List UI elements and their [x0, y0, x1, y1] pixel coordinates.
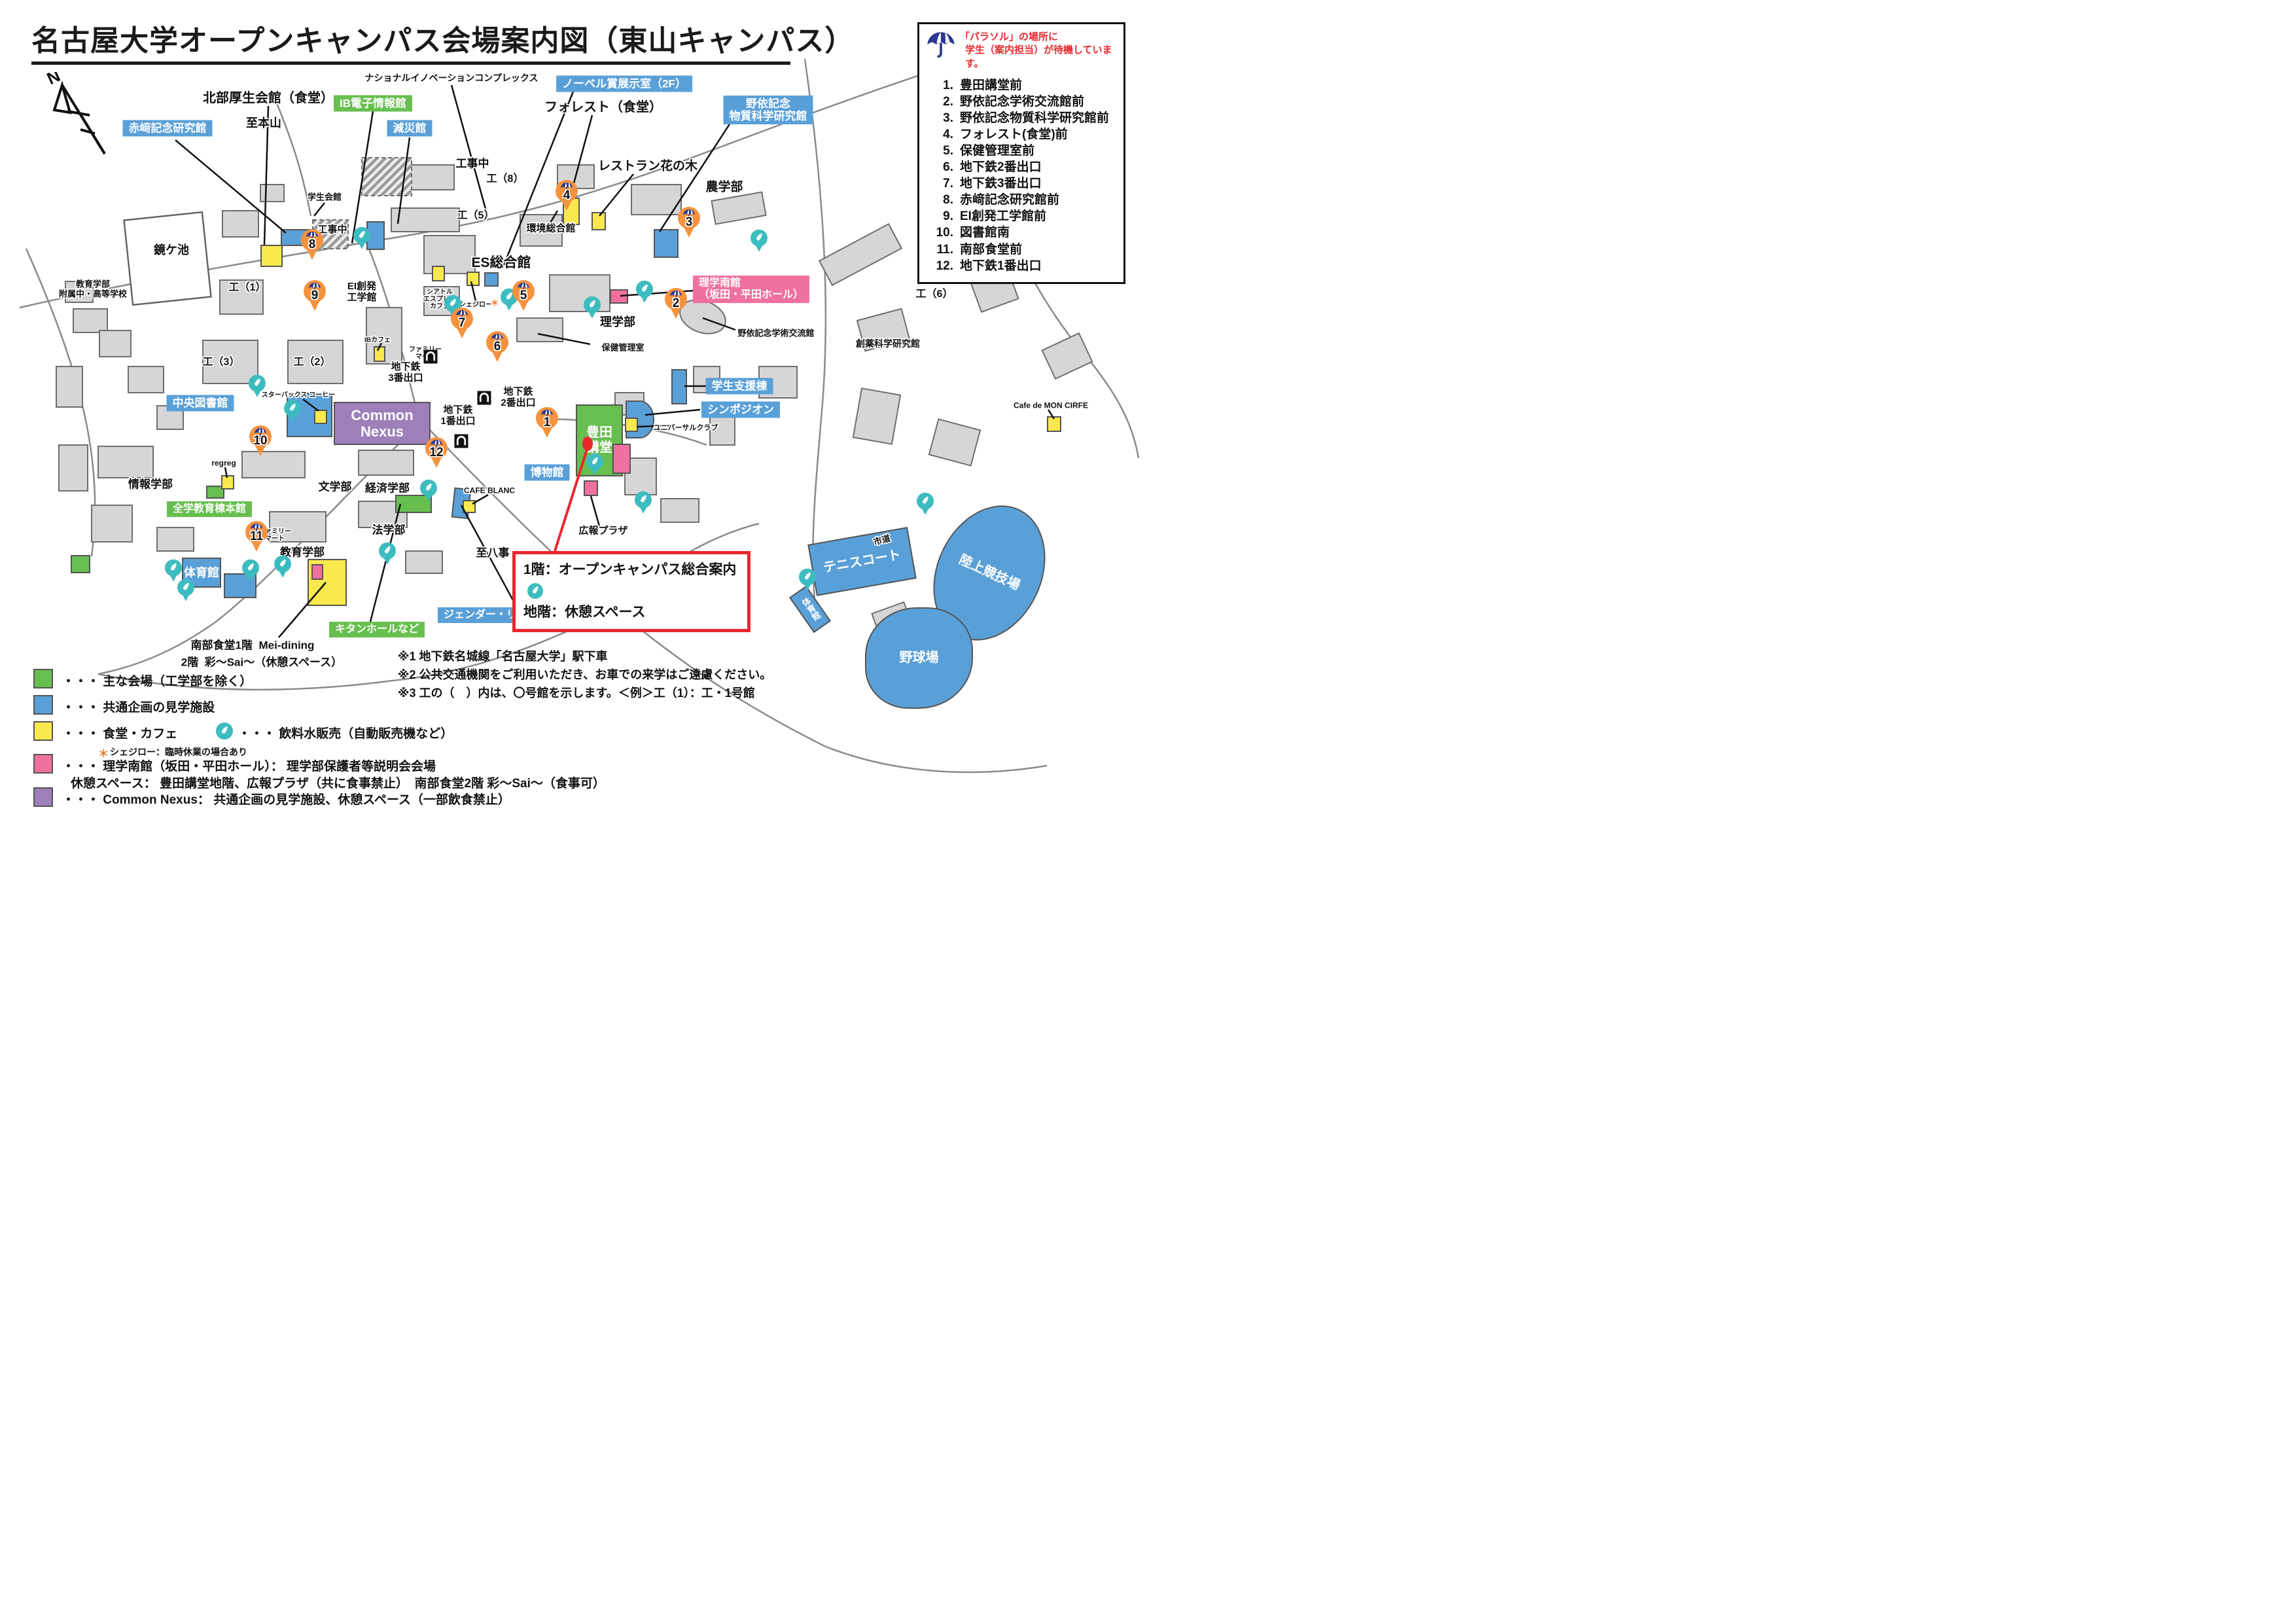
vending-machine-pin-15 [242, 560, 259, 577]
legend-purple-label: ・・・ Common Nexus： 共通企画の見学施設、休憩スペース（一部飲食禁… [62, 790, 510, 808]
building-mon-cirfe-bldg [1047, 416, 1061, 432]
map-label-3: フォレスト（食堂） [544, 100, 662, 115]
map-label-57: 中央図書館 [167, 395, 234, 411]
building-universal-club-bldg [625, 418, 638, 432]
building-student-support-bldg [671, 369, 687, 404]
building-label: 体育館 [184, 566, 219, 580]
parasol-list-item-10: 10.図書館南 [926, 224, 1118, 241]
map-label-55: 学生支援棟 [706, 378, 773, 394]
parasol-list-item-3: 3.野依記念物質科学研究館前 [926, 110, 1118, 126]
building-baseball-field: 野球場 [865, 607, 973, 709]
vending-machine-pin-18 [917, 493, 934, 510]
map-label-28: 野依記念学術交流館 [737, 329, 814, 339]
parasol-list-item-4: 4.フォレスト(食堂)前 [926, 126, 1118, 143]
map-label-9: 工（8） [487, 173, 524, 185]
map-label-47: 南部食堂1階 Mei-dining [191, 639, 315, 651]
map-label-51: 減災館 [387, 120, 433, 136]
parasol-pin-6: 6 [485, 331, 510, 364]
parasol-pin-4: 4 [554, 180, 579, 213]
map-label-7: 学生会館 [308, 193, 342, 203]
subway-entrance-icon-1 [424, 350, 438, 364]
note-3: ※3 工の（ ）内は、〇号館を示します。＜例＞工（1）：工・1号館 [398, 685, 771, 703]
legend-pink-swatch [33, 754, 53, 774]
legend-drink-label: ・・・ 飲料水販売（自動販売機など） [238, 724, 453, 741]
map-label-53: 野依記念 物質科学研究館 [724, 96, 813, 124]
map-label-34: 情報学部 [128, 478, 173, 490]
map-label-42: CAFE BLANC [464, 486, 515, 495]
building-label: 体育館 [799, 596, 822, 623]
map-label-14: ES総合館 [471, 255, 531, 271]
vending-machine-pin-13 [165, 560, 182, 577]
map-label-26: 理学部 [600, 315, 635, 329]
legend-green-label: ・・・ 主な会場（工学部を除く） [62, 671, 252, 689]
building-regreg-bldg [221, 475, 234, 490]
parasol-pin-5: 5 [511, 280, 536, 313]
building-es-blue-bldg [484, 272, 499, 287]
parasol-pin-10: 10 [248, 425, 273, 458]
parasol-pin-7: 7 [450, 308, 474, 340]
map-label-17: 教育学部 附属中・高等学校 [59, 279, 127, 298]
building-ib-cafe-bldg [374, 346, 385, 362]
legend-yellow-label: ・・・ 食堂・カフェ [62, 724, 177, 741]
legend-yellow-swatch [33, 721, 53, 741]
map-label-2: ナショナルイノベーションコンプレックス [365, 73, 539, 84]
map-label-46: 地下鉄 2番出口 [501, 387, 535, 409]
parasol-pin-9: 9 [302, 280, 327, 313]
parasol-pin-12: 12 [424, 437, 449, 470]
note-1: ※1 地下鉄名城線「名古屋大学」駅下車 [398, 648, 771, 666]
map-label-50: IB電子情報館 [334, 95, 412, 111]
legend-blue-swatch [33, 695, 53, 715]
map-label-27: 保健管理室 [601, 344, 644, 353]
map-label-11: 鏡ケ池 [154, 243, 189, 257]
vending-machine-pin-10 [635, 491, 652, 508]
parasol-list-item-2: 2.野依記念学術交流館前 [926, 94, 1118, 110]
title-underline [31, 62, 790, 65]
compass-north-icon: N [29, 72, 115, 203]
map-label-16: EI創発 工学館 [347, 281, 376, 304]
map-label-8: 工事中 [456, 157, 489, 169]
parasol-legend-heading: 「パラソル」の場所に 学生（案内担当）が待機しています。 [960, 31, 1118, 71]
parasol-list-item-6: 6.地下鉄2番出口 [926, 159, 1118, 175]
parasol-pin-8: 8 [300, 229, 325, 262]
map-label-49: 赤﨑記念研究館 [123, 120, 213, 136]
building-label: 陸上競技場 [957, 552, 1022, 594]
building-nanbu-pink-bldg [311, 564, 323, 580]
map-label-32: スターバックス コーヒー [262, 391, 335, 399]
parasol-list-item-7: 7.地下鉄3番出口 [926, 175, 1118, 192]
building-noyori-material-bldg [654, 229, 679, 258]
map-label-6: 至本山 [246, 116, 281, 130]
map-label-4: レストラン花の木 [598, 159, 698, 173]
building-hokubu-dining-bldg [260, 245, 283, 267]
parasol-icon [926, 31, 956, 61]
map-label-52: ノーベル賞展示室（2F） [556, 75, 692, 92]
vending-machine-pin-14 [177, 579, 194, 596]
legend-bottle-icon [216, 722, 233, 740]
building-label: テニスコート [822, 547, 902, 575]
vending-machine-pin-8 [284, 400, 301, 417]
building-hananoki-bldg [592, 212, 606, 230]
map-label-45: 地下鉄 1番出口 [440, 405, 475, 427]
legend-rest-label: 休憩スペース： 豊田講堂地階、広報プラザ（共に食事禁止） 南部食堂2階 彩～Sa… [71, 774, 605, 791]
map-label-22: 工（2） [294, 357, 331, 368]
map-label-29: 創薬科学研究館 [856, 339, 920, 349]
building-toyoda-basement-bldg [612, 444, 631, 474]
building-label: 野球場 [900, 651, 939, 666]
map-label-35: 文学部 [319, 480, 352, 493]
building-rigaku-south-bldg [610, 289, 628, 304]
building-zengaku-green-bldg [71, 555, 90, 573]
building-tennis-court: テニスコート [807, 527, 917, 596]
map-label-21: 工（3） [203, 357, 240, 368]
vending-machine-pin-9 [586, 454, 603, 471]
map-label-58: 博物館 [525, 464, 570, 480]
map-label-37: 法学部 [372, 524, 406, 536]
subway-entrance-icon-2 [478, 391, 491, 405]
parasol-list-item-11: 11.南部食堂前 [926, 241, 1118, 258]
vending-machine-pin-5 [636, 281, 653, 298]
building-koho-plaza-bldg [584, 480, 598, 496]
info-box-line2: 地階：休憩スペース [523, 602, 739, 624]
parasol-list-item-8: 8.赤﨑記念研究館前 [926, 192, 1118, 208]
vending-machine-pin-4 [584, 296, 601, 313]
legend-blue-label: ・・・ 共通企画の見学施設 [62, 698, 215, 715]
map-label-23: IBカフェ [364, 336, 391, 344]
notes: ※1 地下鉄名城線「名古屋大学」駅下車 ※2 公共交通機関をご利用いただき、お車… [398, 648, 771, 703]
vending-machine-pin-16 [274, 556, 291, 573]
map-label-36: 経済学部 [365, 482, 410, 494]
campus-map-page: N 豊田 講堂体育館テニスコート陸上競技場野球場体育館Common Nexus北… [0, 0, 1148, 811]
parasol-list-item-9: 9.EI創発工学館前 [926, 208, 1118, 224]
vending-machine-pin-7 [249, 375, 266, 392]
map-label-41: 広報プラザ [578, 526, 627, 537]
map-label-15: 工（1） [229, 282, 266, 294]
legend-pink-label: ・・・ 理学南館（坂田・平田ホール）： 理学部保護者等説明会会場 [62, 757, 436, 774]
map-label-13: 環境総合館 [526, 224, 575, 235]
vending-machine-pin-17 [799, 569, 816, 586]
map-label-20: ＊ [490, 299, 499, 309]
info-box-line1: 1階：オープンキャンパス総合案内 [523, 562, 736, 577]
parasol-list-item-12: 12.地下鉄1番出口 [926, 258, 1118, 274]
vending-machine-pin-1 [353, 227, 370, 244]
parasol-list-item-5: 5.保健管理室前 [926, 143, 1118, 159]
map-label-31: Cafe de MON CIRFE [1014, 401, 1088, 410]
parasol-list-item-1: 1.豊田講堂前 [926, 77, 1118, 94]
vending-machine-pin-11 [420, 480, 437, 497]
map-label-54: 理学南館 （坂田・平田ホール） [693, 276, 809, 303]
subway-entrance-icon-3 [455, 435, 468, 448]
parasol-pin-2: 2 [663, 288, 688, 321]
parasol-pin-11: 11 [244, 521, 269, 554]
map-label-61: 全学教育棟本館 [167, 501, 252, 517]
building-cafe-blanc-bldg [463, 500, 476, 513]
map-label-25: 地下鉄 3番出口 [388, 362, 423, 384]
parasol-legend-box: 「パラソル」の場所に 学生（案内担当）が待機しています。 1.豊田講堂前2.野依… [917, 22, 1125, 284]
map-label-48: 2階 彩～Sai～（休憩スペース） [181, 656, 342, 668]
bottle-icon [527, 583, 543, 599]
building-seattle-espresso-bldg [432, 266, 445, 281]
legend-green-swatch [33, 669, 53, 688]
building-label: Common Nexus [351, 407, 413, 440]
svg-text:N: N [44, 72, 63, 88]
building-common-nexus: Common Nexus [334, 402, 431, 445]
map-label-43: 至八事 [476, 546, 510, 559]
map-label-5: 農学部 [705, 180, 743, 194]
vending-machine-pin-6 [751, 230, 768, 247]
legend-purple-swatch [33, 787, 53, 807]
page-title: 名古屋大学オープンキャンパス会場案内図（東山キャンパス） [31, 17, 854, 59]
parasol-list: 1.豊田講堂前2.野依記念学術交流館前3.野依記念物質科学研究館前4.フォレスト… [926, 77, 1118, 274]
note-2: ※2 公共交通機関をご利用いただき、お車での来学はご遠慮ください。 [398, 666, 771, 685]
map-label-33: regreg [211, 459, 236, 467]
toyoda-info-box: 1階：オープンキャンパス総合案内 地階：休憩スペース [512, 551, 751, 632]
map-label-30: 工（6） [916, 289, 953, 300]
building-starbucks-bldg [314, 410, 327, 424]
parasol-pin-3: 3 [677, 207, 701, 240]
vending-machine-pin-12 [379, 543, 396, 560]
parasol-pin-1: 1 [535, 407, 559, 440]
map-label-12: 工（5） [457, 210, 495, 222]
map-label-60: キタンホールなど [329, 622, 425, 637]
map-label-40: ユニバーサルクラブ [654, 424, 718, 432]
map-label-56: シンポジオン [701, 401, 780, 418]
map-label-1: 北部厚生会館（食堂） [203, 91, 334, 105]
building-chez-giraud-bldg [467, 272, 480, 286]
building-label: 豊田 講堂 [586, 425, 612, 455]
